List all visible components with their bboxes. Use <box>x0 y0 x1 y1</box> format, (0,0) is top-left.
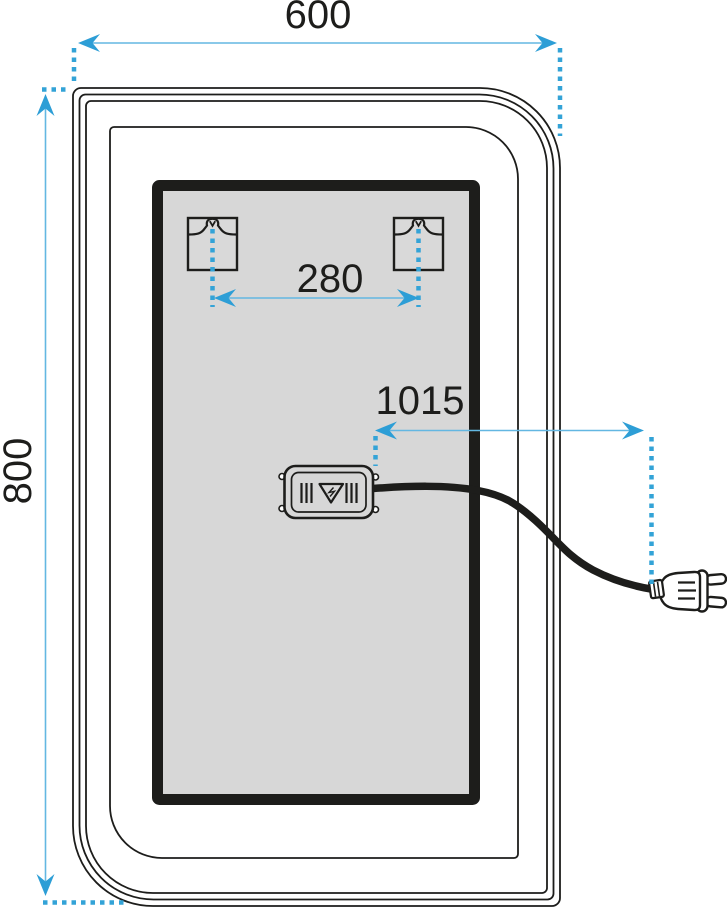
dimension-height-label: 800 <box>0 438 38 505</box>
junction-box <box>279 466 379 518</box>
dimension-bracket-spacing-label: 280 <box>297 259 364 299</box>
dimension-width-label: 600 <box>285 0 352 35</box>
plug-pin-top <box>706 574 727 585</box>
mirror-dimension-diagram: 600 800 280 1015 <box>0 0 727 909</box>
diagram-canvas <box>0 0 727 909</box>
dimension-cable-length-label: 1015 <box>376 381 465 421</box>
mounting-bracket-left <box>188 218 237 270</box>
power-plug <box>649 571 726 612</box>
mounting-bracket-right <box>394 218 443 270</box>
